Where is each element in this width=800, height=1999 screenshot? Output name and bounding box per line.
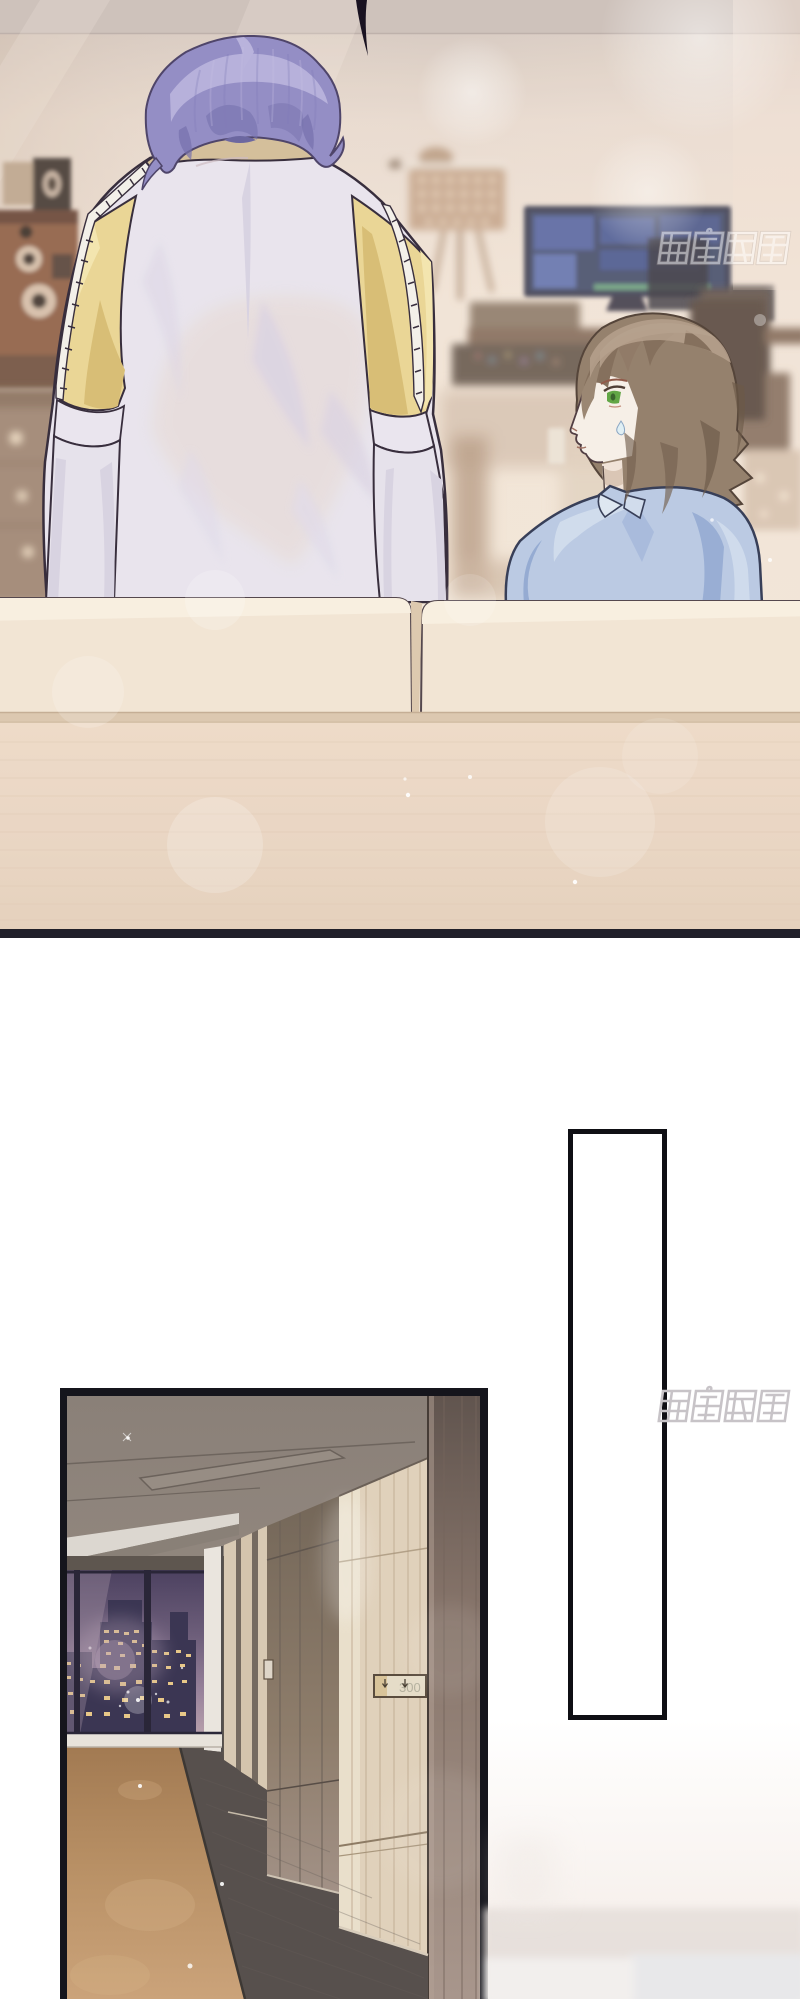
svg-text:300: 300 — [399, 1680, 421, 1695]
